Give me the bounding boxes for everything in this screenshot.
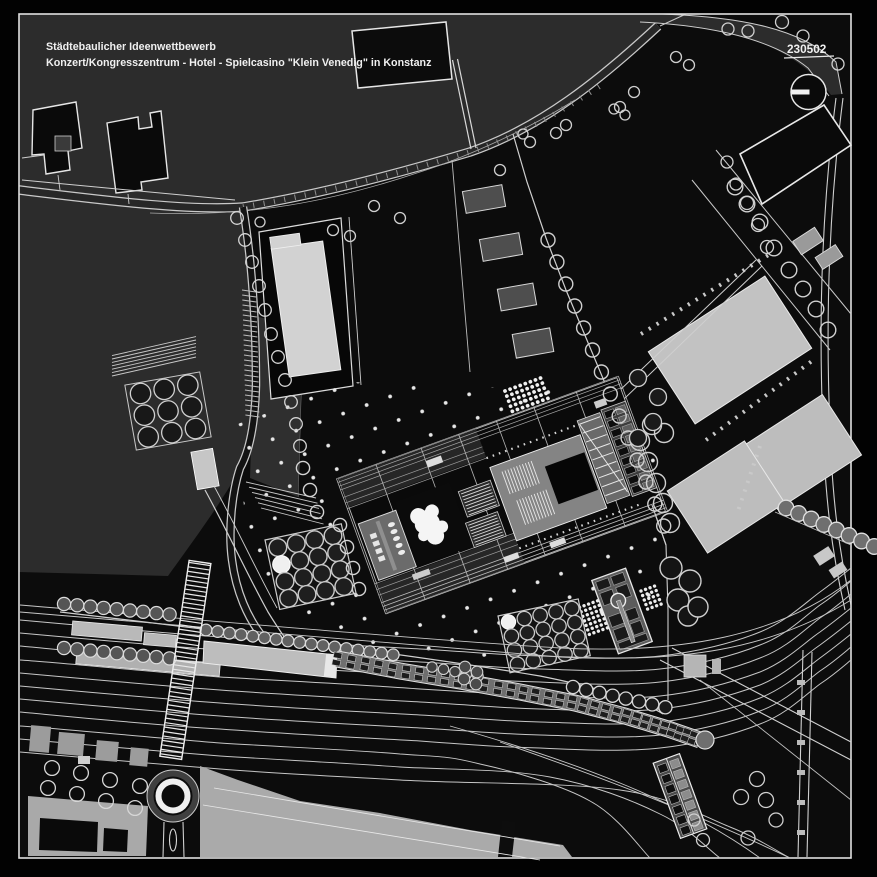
svg-text:Konzert/Kongresszentrum - Hote: Konzert/Kongresszentrum - Hotel - Spielc… — [46, 57, 431, 69]
svg-text:230502: 230502 — [787, 42, 827, 56]
svg-text:Städtebaulicher Ideenwettbewer: Städtebaulicher Ideenwettbewerb — [46, 41, 216, 53]
